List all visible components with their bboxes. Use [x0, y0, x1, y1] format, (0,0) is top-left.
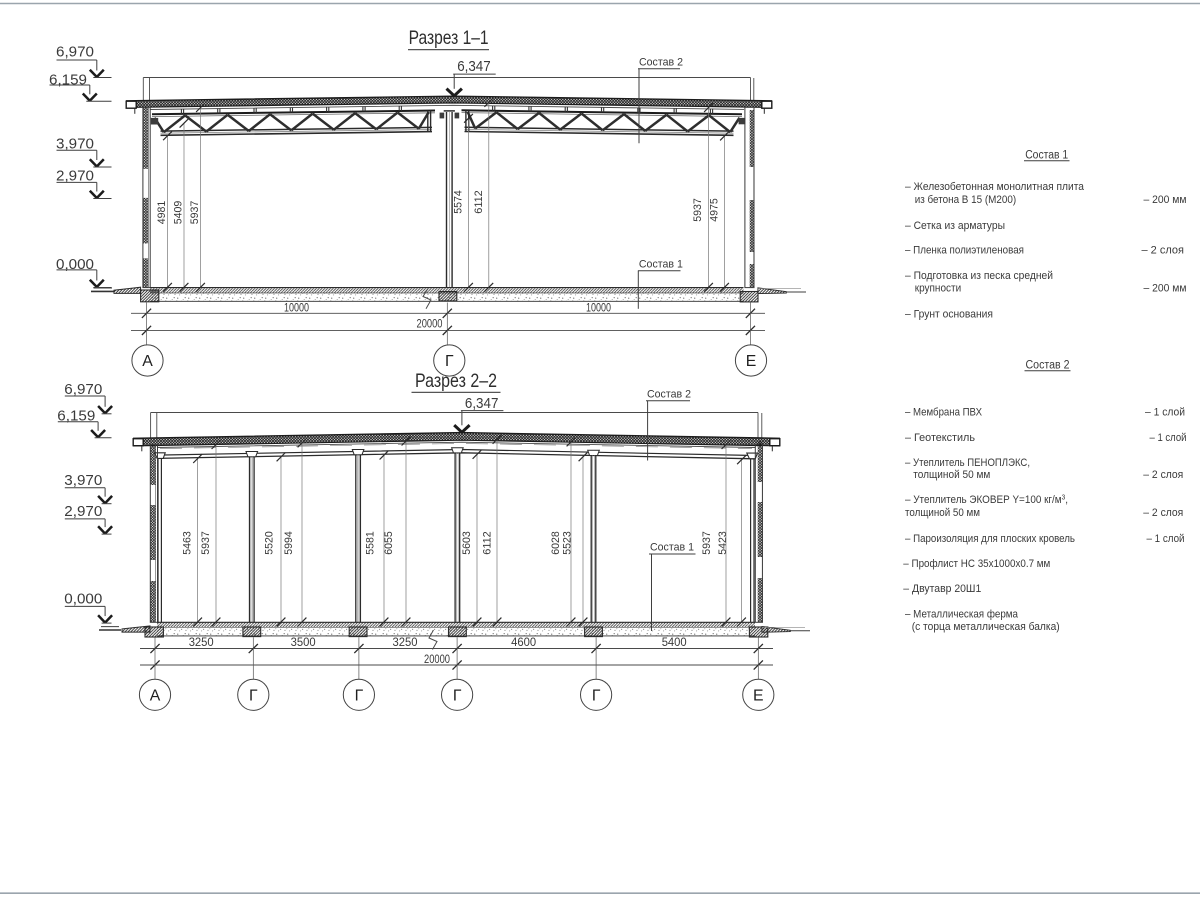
svg-text:3250: 3250	[393, 637, 418, 649]
svg-text:– 2 слоя: – 2 слоя	[1142, 244, 1185, 256]
svg-text:– Мембрана ПВХ: – Мембрана ПВХ	[905, 406, 982, 418]
svg-text:(с торца металлическая балка): (с торца металлическая балка)	[912, 621, 1060, 633]
svg-text:толщиной 50 мм: толщиной 50 мм	[905, 507, 980, 519]
svg-text:– 200 мм: – 200 мм	[1144, 194, 1187, 206]
svg-text:6,970: 6,970	[56, 45, 94, 61]
svg-text:5520: 5520	[264, 531, 276, 555]
svg-text:Состав 1: Состав 1	[639, 258, 683, 270]
svg-text:Состав 2: Состав 2	[647, 388, 691, 400]
svg-text:5423: 5423	[717, 531, 729, 555]
svg-text:– Металлическая ферма: – Металлическая ферма	[905, 608, 1019, 620]
svg-text:5937: 5937	[200, 531, 212, 555]
svg-text:Состав 1: Состав 1	[1025, 150, 1068, 162]
svg-text:из бетона В 15 (М200): из бетона В 15 (М200)	[915, 194, 1017, 206]
svg-text:4975: 4975	[709, 198, 721, 222]
svg-text:20000: 20000	[424, 654, 450, 666]
svg-text:толщиной 50 мм: толщиной 50 мм	[913, 469, 990, 481]
svg-text:4600: 4600	[511, 637, 536, 649]
svg-text:А: А	[150, 687, 161, 704]
svg-text:6112: 6112	[481, 531, 493, 555]
svg-text:– Утеплитель ЭКОВЕР Y=100 кг/м: – Утеплитель ЭКОВЕР Y=100 кг/м3,	[905, 493, 1068, 507]
svg-text:– 2 слоя: – 2 слоя	[1143, 469, 1183, 481]
svg-text:6028: 6028	[550, 531, 562, 555]
svg-text:5409: 5409	[172, 201, 184, 225]
svg-text:– Пароизоляция для плоских кро: – Пароизоляция для плоских кровель	[905, 533, 1075, 545]
svg-text:0,000: 0,000	[56, 257, 94, 273]
svg-text:4981: 4981	[156, 201, 168, 225]
svg-text:Г: Г	[453, 687, 462, 704]
svg-text:5400: 5400	[662, 637, 687, 649]
svg-text:– Профлист НС 35х1000х0.7 мм: – Профлист НС 35х1000х0.7 мм	[903, 558, 1050, 570]
svg-text:Г: Г	[249, 687, 258, 704]
svg-text:крупности: крупности	[915, 283, 962, 295]
svg-text:6,347: 6,347	[457, 58, 491, 75]
svg-text:10000: 10000	[284, 302, 309, 314]
svg-text:Е: Е	[746, 353, 757, 370]
svg-text:– Сетка из арматуры: – Сетка из арматуры	[905, 220, 1005, 232]
svg-text:6,159: 6,159	[57, 409, 95, 425]
svg-text:3500: 3500	[291, 637, 316, 649]
svg-text:Е: Е	[753, 687, 764, 704]
svg-text:5581: 5581	[365, 531, 377, 555]
svg-text:5603: 5603	[461, 531, 473, 555]
svg-text:– 200 мм: – 200 мм	[1144, 283, 1187, 295]
svg-text:А: А	[142, 353, 153, 370]
svg-text:0,000: 0,000	[64, 592, 102, 608]
svg-text:5574: 5574	[453, 190, 465, 214]
svg-text:3250: 3250	[189, 637, 214, 649]
svg-text:Разрез 2–2: Разрез 2–2	[415, 370, 497, 392]
svg-text:6,970: 6,970	[64, 382, 102, 398]
svg-text:– Утеплитель ПЕНОПЛЭКС,: – Утеплитель ПЕНОПЛЭКС,	[905, 457, 1030, 469]
svg-text:6,159: 6,159	[49, 72, 87, 88]
svg-text:– 1 слой: – 1 слой	[1150, 432, 1187, 444]
svg-text:5937: 5937	[189, 201, 201, 225]
svg-text:Разрез 1–1: Разрез 1–1	[409, 27, 489, 49]
svg-text:– 1 слой: – 1 слой	[1145, 406, 1185, 418]
svg-text:– Двутавр 20Ш1: – Двутавр 20Ш1	[903, 583, 981, 595]
svg-text:3,970: 3,970	[64, 473, 102, 489]
svg-text:– Грунт основания: – Грунт основания	[905, 308, 993, 320]
svg-text:– Железобетонная монолитная п: – Железобетонная монолитная плита	[905, 181, 1085, 193]
svg-text:Г: Г	[355, 687, 364, 704]
svg-text:Состав 2: Состав 2	[1026, 360, 1070, 372]
svg-text:Г: Г	[592, 687, 601, 704]
svg-text:Состав 1: Состав 1	[650, 542, 694, 554]
svg-text:– 2 слоя: – 2 слоя	[1143, 507, 1183, 519]
svg-text:2,970: 2,970	[64, 504, 102, 520]
svg-text:– Геотекстиль: – Геотекстиль	[905, 432, 975, 444]
svg-text:5937: 5937	[701, 531, 713, 555]
svg-text:5937: 5937	[692, 198, 704, 222]
svg-text:6112: 6112	[473, 190, 485, 214]
svg-text:20000: 20000	[417, 318, 443, 330]
svg-text:– Пленка полиэтиленовая: – Пленка полиэтиленовая	[905, 244, 1024, 256]
svg-text:Г: Г	[445, 353, 454, 370]
svg-text:5523: 5523	[562, 531, 574, 555]
svg-text:6055: 6055	[383, 531, 395, 555]
svg-text:6,347: 6,347	[465, 395, 499, 412]
svg-text:– Подготовка из песка средней: – Подготовка из песка средней	[905, 270, 1053, 282]
svg-text:5994: 5994	[283, 531, 295, 555]
svg-text:Состав 2: Состав 2	[639, 56, 683, 68]
svg-text:– 1 слой: – 1 слой	[1147, 533, 1185, 545]
svg-text:10000: 10000	[586, 302, 611, 314]
svg-text:5463: 5463	[182, 531, 194, 555]
